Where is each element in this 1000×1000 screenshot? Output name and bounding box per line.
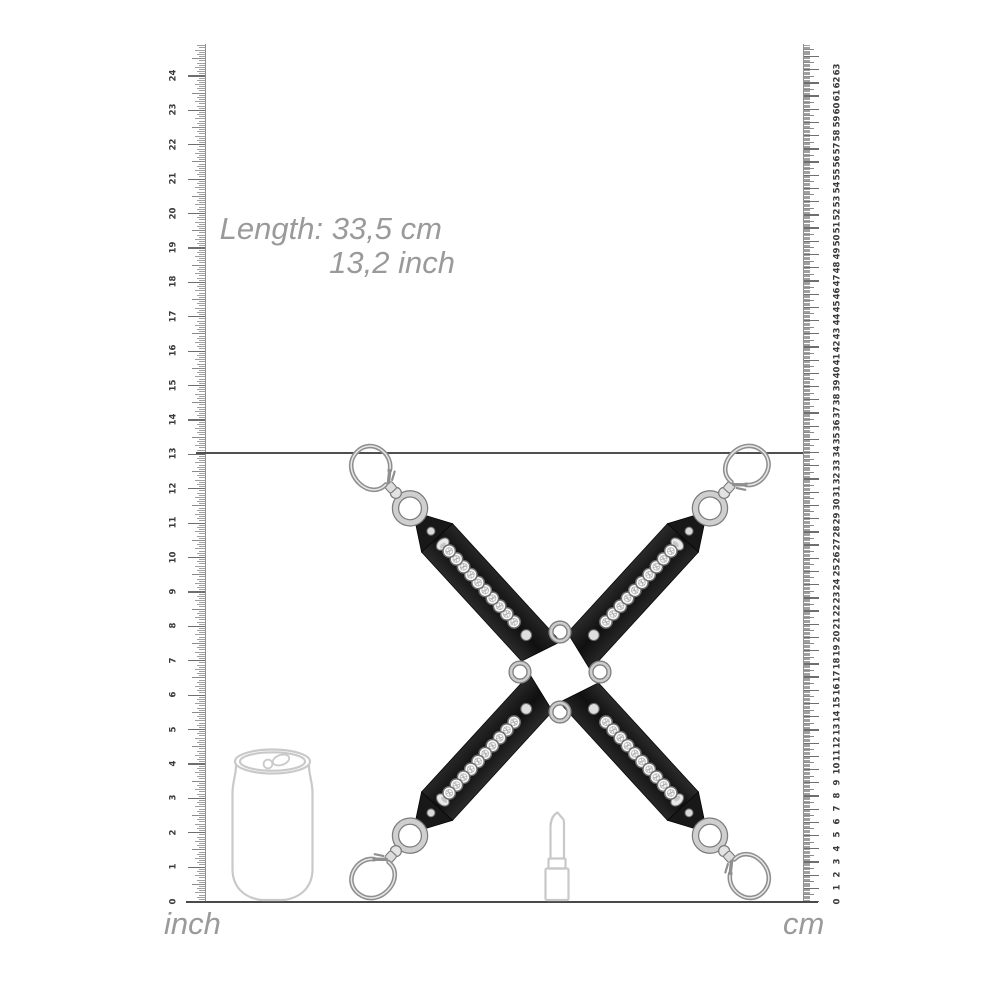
strap-arm-top-left bbox=[342, 437, 561, 670]
strap-arm-bottom-right bbox=[559, 674, 778, 907]
hogtie-cross-product bbox=[342, 437, 778, 907]
lipstick-outline bbox=[546, 813, 569, 901]
product-measurement-image: 0123456789101112131415161718192021222324… bbox=[0, 0, 1000, 1000]
soda-can-outline bbox=[233, 750, 313, 901]
strap-arm-bottom-left bbox=[342, 674, 561, 907]
strap-arm-top-right bbox=[559, 437, 778, 670]
product-graphic bbox=[0, 0, 1000, 1000]
